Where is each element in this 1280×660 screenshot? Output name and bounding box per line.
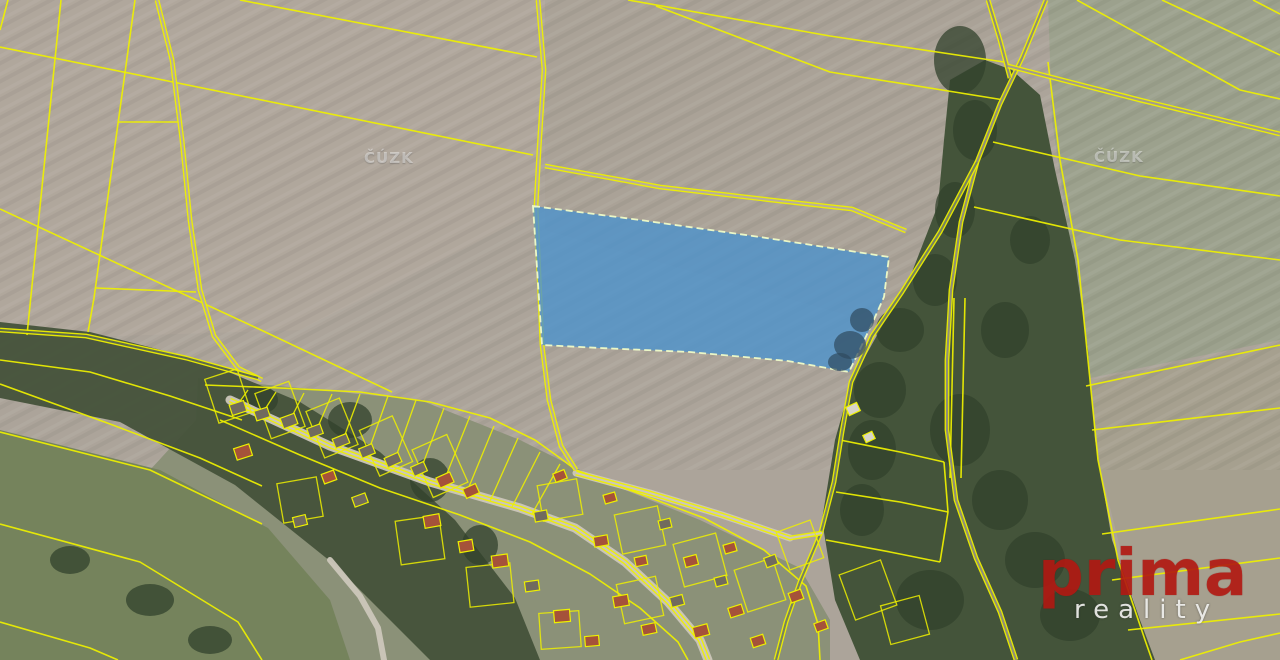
building-roof: [458, 539, 474, 552]
building-footprint: [634, 555, 648, 566]
tree-canopy-in-parcel: [828, 353, 852, 371]
building-footprint: [593, 535, 609, 547]
building-roof: [491, 554, 509, 568]
map-canvas: [0, 0, 1280, 660]
tree-canopy: [188, 626, 232, 654]
tree-canopy: [981, 302, 1029, 358]
building-roof: [593, 535, 609, 547]
building-footprint: [458, 539, 474, 552]
building-footprint: [423, 514, 441, 529]
building-roof: [613, 594, 630, 607]
tree-canopy-in-parcel: [850, 308, 874, 332]
building-roof: [524, 580, 539, 592]
building-roof: [634, 555, 648, 566]
building-roof: [534, 510, 549, 522]
tree-canopy: [930, 394, 990, 466]
building-footprint: [524, 580, 539, 592]
building-footprint: [554, 609, 571, 622]
tree-canopy: [876, 308, 924, 352]
tree-canopy: [840, 484, 884, 536]
building-roof: [641, 623, 657, 636]
tree-canopy: [50, 546, 90, 574]
building-footprint: [491, 554, 509, 568]
building-roof: [585, 635, 600, 646]
tree-canopy: [934, 26, 986, 94]
tree-canopy: [1005, 532, 1065, 588]
building-roof: [423, 514, 441, 529]
building-footprint: [613, 594, 630, 607]
tree-canopy: [896, 570, 964, 630]
tree-canopy: [854, 362, 906, 418]
tree-canopy: [1040, 589, 1100, 641]
building-footprint: [534, 510, 549, 522]
map-viewport[interactable]: ČÚZK ČÚZK prima reality: [0, 0, 1280, 660]
building-footprint: [585, 635, 600, 646]
tree-canopy: [126, 584, 174, 616]
building-roof: [554, 609, 571, 622]
building-footprint: [641, 623, 657, 636]
tree-canopy: [972, 470, 1028, 530]
